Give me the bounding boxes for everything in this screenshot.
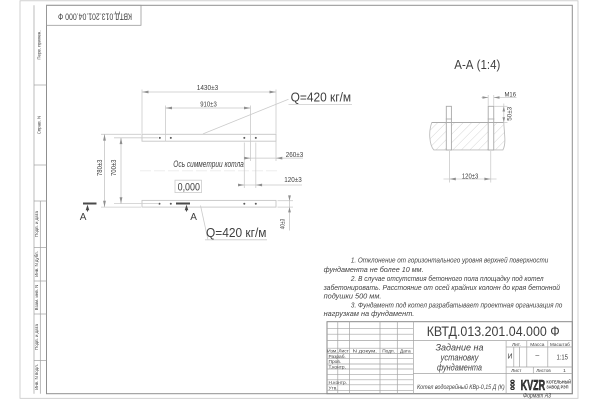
svg-text:A: A: [80, 212, 87, 223]
svg-text:ЗАВОД РЭП: ЗАВОД РЭП: [546, 385, 568, 390]
svg-text:фундамента: фундамента: [437, 363, 482, 373]
svg-text:Масштаб: Масштаб: [550, 342, 570, 348]
svg-text:1430±3: 1430±3: [197, 83, 219, 92]
svg-text:Подп. и дата: Подп. и дата: [34, 324, 39, 350]
svg-text:Т.контр.: Т.контр.: [329, 364, 346, 370]
svg-text:260±3: 260±3: [286, 150, 304, 159]
svg-text:установку: установку: [440, 353, 479, 363]
svg-text:Котел водогрейный КВр-0,15 Д (: Котел водогрейный КВр-0,15 Д (К): [417, 384, 505, 391]
svg-text:Листов: Листов: [536, 368, 551, 374]
svg-text:Перв. примен.: Перв. примен.: [37, 30, 42, 59]
svg-text:Разраб.: Разраб.: [329, 354, 346, 360]
svg-text:KVZR: KVZR: [521, 377, 546, 394]
svg-text:1:15: 1:15: [556, 354, 568, 361]
svg-text:M16: M16: [505, 91, 517, 98]
svg-text:КВТД.013.201.04.000 Ф: КВТД.013.201.04.000 Ф: [58, 12, 132, 22]
svg-text:Утв.: Утв.: [329, 386, 338, 392]
svg-text:–: –: [535, 352, 539, 359]
svg-text:подушки 500 мм.: подушки 500 мм.: [324, 291, 382, 300]
svg-text:A: A: [190, 212, 197, 223]
svg-text:Лист: Лист: [511, 368, 522, 374]
svg-text:Н.контр.: Н.контр.: [329, 380, 347, 386]
svg-text:Формат А3: Формат А3: [523, 393, 552, 399]
svg-text:Лист: Лист: [338, 348, 349, 354]
svg-text:Дата: Дата: [400, 348, 411, 354]
svg-text:Задание на: Задание на: [436, 342, 484, 352]
svg-text:120±3: 120±3: [284, 175, 302, 184]
svg-text:А-А (1:4): А-А (1:4): [454, 57, 500, 72]
svg-text:700±3: 700±3: [109, 160, 118, 177]
svg-text:0,000: 0,000: [178, 182, 200, 194]
svg-text:КВТД.013.201.04.000 Ф: КВТД.013.201.04.000 Ф: [427, 324, 560, 339]
svg-text:нагрузкам на фундамент.: нагрузкам на фундамент.: [324, 309, 415, 318]
svg-text:910±3: 910±3: [200, 100, 217, 109]
svg-text:Q=420 кг/м: Q=420 кг/м: [291, 90, 352, 105]
svg-text:120±3: 120±3: [462, 171, 479, 180]
svg-text:фундамента не более 10 мм.: фундамента не более 10 мм.: [324, 265, 424, 274]
svg-text:Подп.: Подп.: [382, 348, 395, 354]
svg-text:780±3: 780±3: [95, 160, 104, 177]
svg-text:Инв. N дубл.: Инв. N дубл.: [34, 251, 39, 277]
svg-text:ООО: ООО: [510, 380, 516, 390]
svg-text:Подп. и дата: Подп. и дата: [34, 211, 39, 237]
svg-text:Масса: Масса: [530, 342, 545, 348]
svg-text:Ось симметрии котла: Ось симметрии котла: [173, 159, 244, 169]
svg-text:Пров.: Пров.: [329, 359, 342, 365]
svg-text:Q=420 кг/м: Q=420 кг/м: [206, 225, 267, 240]
svg-text:Лит.: Лит.: [512, 342, 521, 348]
svg-text:1: 1: [563, 368, 566, 374]
svg-text:Взам. инв. N: Взам. инв. N: [34, 285, 39, 311]
svg-text:Изм.: Изм.: [327, 348, 337, 354]
svg-text:40±3: 40±3: [279, 219, 286, 230]
svg-text:Инв. N подл.: Инв. N подл.: [34, 364, 39, 390]
svg-text:50±3: 50±3: [507, 106, 514, 120]
svg-text:2. В случае отсутствия бетонно: 2. В случае отсутствия бетонного пола пл…: [350, 274, 544, 283]
svg-text:И: И: [507, 353, 512, 360]
svg-text:Справ. N: Справ. N: [37, 116, 42, 134]
svg-text:N докум.: N докум.: [353, 348, 377, 354]
svg-text:1. Отклонение от горизонтально: 1. Отклонение от горизонтального уровня …: [351, 256, 549, 265]
